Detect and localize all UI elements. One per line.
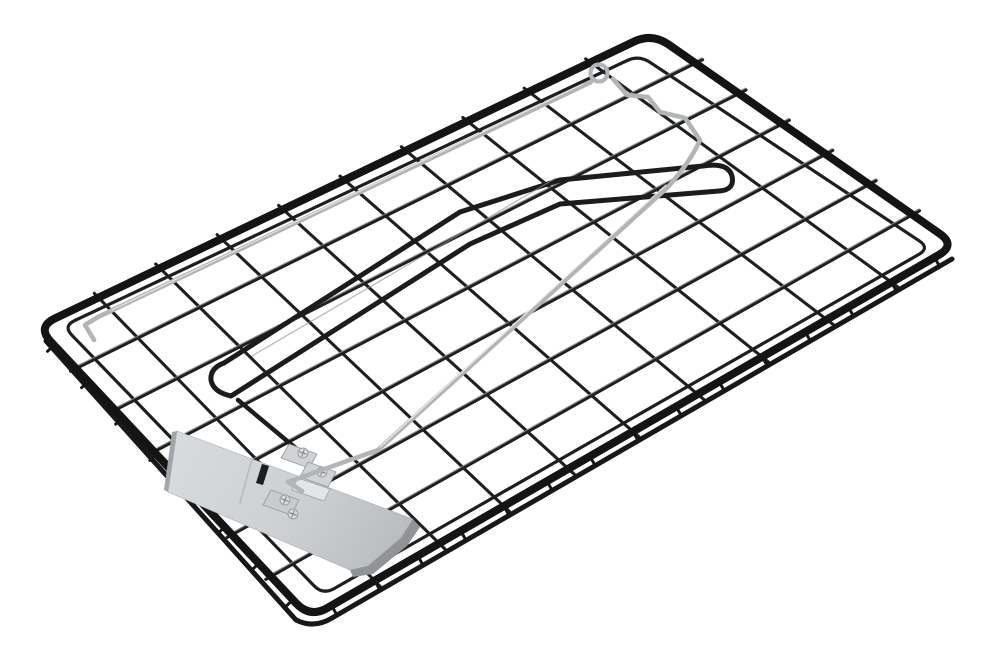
product-photo: [0, 0, 990, 660]
bracket-screw: [280, 495, 290, 505]
latch-wire-long-leg: [85, 82, 591, 340]
bracket-screw: [288, 509, 298, 519]
latch-wire-main-highlight: [380, 185, 666, 447]
outer-frame-rim: [45, 38, 948, 612]
wire-mesh-trap-photo: [0, 0, 990, 660]
bracket-screw: [298, 448, 308, 458]
